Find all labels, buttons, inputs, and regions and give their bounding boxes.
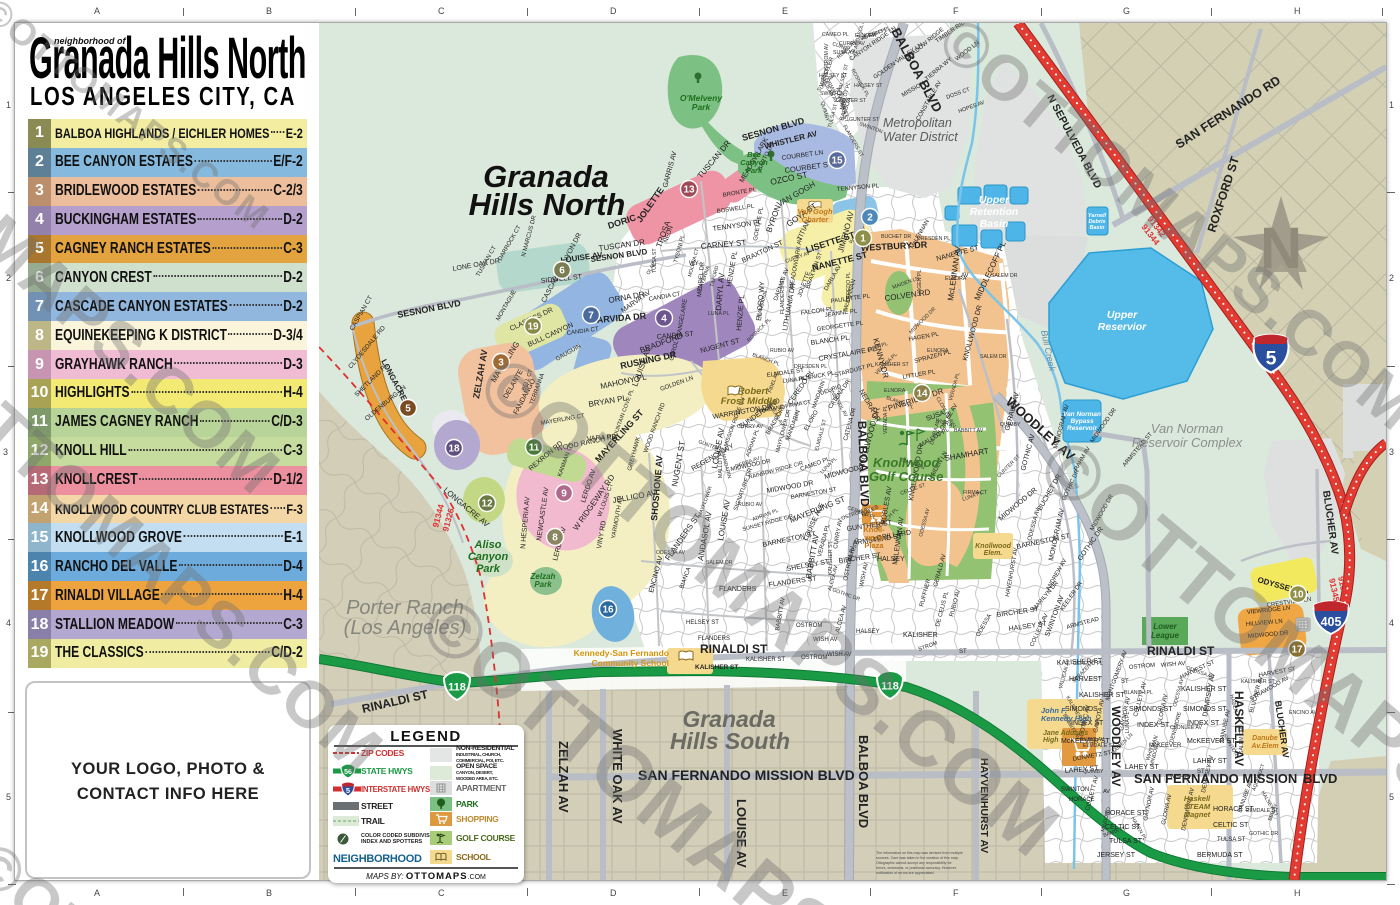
- svg-text:Danube: Danube: [1252, 735, 1278, 742]
- svg-text:Metropolitan: Metropolitan: [883, 116, 952, 130]
- svg-text:Frost Middle: Frost Middle: [721, 396, 778, 407]
- svg-text:FLANDERS: FLANDERS: [719, 586, 757, 593]
- svg-text:LUNA PL: LUNA PL: [708, 311, 729, 317]
- svg-text:SWINTON: SWINTON: [1061, 787, 1089, 793]
- svg-text:HELSEY ST: HELSEY ST: [686, 620, 719, 626]
- svg-text:Kennedy-San Fernando: Kennedy-San Fernando: [574, 648, 669, 658]
- svg-text:HAYVENHURST AV: HAYVENHURST AV: [978, 758, 990, 853]
- svg-text:18: 18: [448, 444, 460, 455]
- svg-text:errors, omissions, or position: errors, omissions, or positional accurac…: [876, 866, 957, 870]
- svg-text:ST: ST: [959, 649, 967, 655]
- svg-text:Bypass: Bypass: [1070, 418, 1094, 425]
- svg-text:QUIMBY: QUIMBY: [1000, 422, 1021, 428]
- svg-text:Park: Park: [534, 580, 552, 589]
- svg-text:Kennedy High: Kennedy High: [1041, 714, 1092, 723]
- svg-text:Van Norman: Van Norman: [1063, 411, 1101, 418]
- svg-text:118: 118: [881, 681, 899, 693]
- svg-text:Lower: Lower: [1153, 622, 1177, 631]
- svg-text:7: 7: [588, 311, 594, 322]
- svg-text:6: 6: [559, 266, 565, 277]
- svg-text:N: N: [1260, 216, 1302, 281]
- svg-text:405: 405: [1321, 615, 1342, 629]
- svg-text:notification of errors are app: notification of errors are appreciated.: [876, 871, 935, 875]
- svg-text:KALISHER ST: KALISHER ST: [1181, 686, 1227, 693]
- svg-text:VERADA PL: VERADA PL: [883, 405, 889, 434]
- svg-text:CURRY AV: CURRY AV: [737, 424, 763, 430]
- svg-text:5: 5: [1266, 347, 1277, 369]
- svg-text:(Los Angeles): (Los Angeles): [344, 617, 467, 639]
- svg-text:Hills North: Hills North: [469, 187, 626, 222]
- svg-text:16: 16: [602, 605, 614, 616]
- svg-text:HASKELL AV: HASKELL AV: [1232, 691, 1246, 766]
- svg-text:17: 17: [1291, 645, 1303, 656]
- svg-text:Canyon: Canyon: [468, 551, 509, 563]
- svg-text:ST: ST: [1121, 679, 1129, 685]
- svg-text:ELNORA: ELNORA: [884, 388, 906, 394]
- svg-text:AV: AV: [1103, 789, 1110, 795]
- svg-text:ELNORA: ELNORA: [927, 348, 949, 354]
- svg-text:ELNORA: ELNORA: [945, 276, 967, 282]
- svg-text:FIRMA CT: FIRMA CT: [963, 490, 988, 496]
- svg-text:Ottographix cannot accept any: Ottographix cannot accept any responsibi…: [876, 861, 953, 865]
- svg-text:DRESDEN PL: DRESDEN PL: [794, 364, 827, 370]
- svg-text:ZELZAH AV: ZELZAH AV: [556, 741, 571, 813]
- svg-text:1: 1: [860, 234, 866, 245]
- svg-text:14: 14: [916, 389, 928, 400]
- svg-text:5: 5: [405, 404, 411, 415]
- svg-text:HALSEY: HALSEY: [856, 629, 880, 635]
- svg-text:9: 9: [561, 489, 567, 500]
- svg-text:56: 56: [344, 769, 352, 776]
- svg-text:WISH AV: WISH AV: [827, 652, 852, 658]
- svg-text:CEREDO PL: CEREDO PL: [1073, 661, 1103, 667]
- svg-text:LOUISE AV: LOUISE AV: [734, 799, 749, 868]
- svg-text:Charter: Charter: [802, 215, 830, 224]
- svg-text:INDEX ST: INDEX ST: [1137, 722, 1170, 729]
- svg-text:SALEM DR: SALEM DR: [991, 273, 1018, 279]
- svg-text:Van Norman: Van Norman: [1151, 421, 1224, 436]
- svg-text:3: 3: [498, 358, 504, 369]
- svg-text:Av.Elem: Av.Elem: [1250, 743, 1278, 750]
- svg-text:Knollwood: Knollwood: [873, 455, 940, 470]
- svg-text:SALEM DR: SALEM DR: [980, 354, 1007, 360]
- svg-text:11: 11: [529, 443, 540, 454]
- svg-text:15: 15: [831, 156, 843, 167]
- svg-text:8: 8: [552, 533, 558, 544]
- svg-text:2: 2: [867, 213, 873, 224]
- svg-text:OSTROM: OSTROM: [801, 655, 827, 661]
- svg-text:Basin: Basin: [1090, 225, 1106, 231]
- svg-text:RINALDI ST: RINALDI ST: [1147, 644, 1215, 658]
- svg-text:HALSEY ST: HALSEY ST: [854, 83, 883, 89]
- svg-text:12: 12: [481, 499, 493, 510]
- svg-text:SALEM DR: SALEM DR: [706, 560, 733, 566]
- svg-text:BABBITT AV: BABBITT AV: [954, 428, 984, 434]
- svg-text:CLONLEE AV: CLONLEE AV: [1170, 725, 1202, 731]
- svg-text:Hills South: Hills South: [670, 728, 790, 754]
- svg-text:118: 118: [448, 682, 466, 694]
- svg-text:KALISHER ST: KALISHER ST: [695, 664, 738, 671]
- svg-text:BALBOA BLVD: BALBOA BLVD: [856, 735, 871, 828]
- svg-text:RUBIO AV: RUBIO AV: [770, 348, 795, 354]
- svg-text:SAN FERNANDO MISSION: SAN FERNANDO MISSION: [1134, 771, 1297, 786]
- svg-text:HAGEN PL: HAGEN PL: [917, 270, 923, 296]
- svg-text:DRESDEN PL: DRESDEN PL: [917, 236, 950, 242]
- svg-text:Knollwood: Knollwood: [975, 543, 1011, 550]
- svg-text:CELTIC ST: CELTIC ST: [1213, 822, 1249, 829]
- svg-text:Golf Course: Golf Course: [869, 469, 943, 484]
- svg-text:Reservior: Reservior: [1098, 321, 1147, 333]
- svg-text:TULSA ST: TULSA ST: [1109, 838, 1143, 845]
- svg-text:HALSEY: HALSEY: [877, 556, 905, 563]
- svg-text:ODESSA AV: ODESSA AV: [656, 550, 686, 556]
- svg-text:ENCINO AV: ENCINO AV: [1289, 710, 1317, 716]
- svg-text:QUIMBY: QUIMBY: [1083, 769, 1104, 775]
- svg-text:GOTHIC DR: GOTHIC DR: [1249, 831, 1278, 837]
- svg-text:FLANDERS ST: FLANDERS ST: [780, 277, 786, 314]
- svg-text:10: 10: [1292, 590, 1304, 601]
- svg-text:JERSEY ST: JERSEY ST: [1097, 852, 1136, 859]
- svg-text:Park: Park: [476, 563, 501, 575]
- svg-text:WISH AV: WISH AV: [813, 637, 838, 643]
- svg-text:BLANCH PL: BLANCH PL: [1124, 690, 1153, 696]
- svg-text:BUCHET DR: BUCHET DR: [881, 234, 911, 240]
- svg-text:13: 13: [683, 185, 695, 196]
- svg-text:RINALDI ST: RINALDI ST: [700, 642, 768, 656]
- svg-text:Plaza: Plaza: [864, 541, 884, 550]
- svg-text:Aliso: Aliso: [474, 539, 502, 551]
- svg-text:Park: Park: [746, 166, 763, 175]
- svg-text:WOODLEY AV: WOODLEY AV: [1109, 706, 1123, 786]
- svg-text:OSTROM AV: OSTROM AV: [824, 43, 830, 74]
- svg-text:Upper: Upper: [979, 194, 1010, 206]
- svg-text:Reservoir: Reservoir: [1067, 425, 1097, 432]
- svg-text:TULSA ST: TULSA ST: [652, 248, 658, 273]
- svg-text:KALISHER ST: KALISHER ST: [746, 657, 785, 663]
- svg-text:SAN FERNANDO MISSION BLVD: SAN FERNANDO MISSION BLVD: [638, 767, 855, 783]
- svg-text:BLVD: BLVD: [1303, 771, 1337, 786]
- svg-text:KALISHER: KALISHER: [903, 632, 938, 639]
- svg-text:RUBIO AV: RUBIO AV: [738, 502, 763, 508]
- svg-text:League: League: [1151, 631, 1180, 640]
- svg-text:TULSA ST: TULSA ST: [1217, 837, 1246, 843]
- svg-text:Basin: Basin: [980, 218, 1009, 230]
- svg-text:19: 19: [527, 322, 539, 333]
- svg-text:Water District: Water District: [883, 130, 958, 144]
- svg-text:OSTROM: OSTROM: [796, 623, 822, 629]
- svg-text:WHITE OAK AV: WHITE OAK AV: [610, 729, 625, 824]
- svg-text:BERMUDA ST: BERMUDA ST: [1197, 852, 1243, 859]
- svg-text:High: High: [1043, 737, 1059, 744]
- svg-text:KALISHER ST: KALISHER ST: [1241, 679, 1276, 685]
- svg-text:KALISHER ST: KALISHER ST: [828, 540, 834, 575]
- svg-text:Community School: Community School: [592, 658, 669, 668]
- svg-text:CAMEO PL: CAMEO PL: [822, 32, 849, 38]
- svg-text:Porter Ranch: Porter Ranch: [346, 597, 464, 619]
- svg-text:Jane Addams: Jane Addams: [1043, 730, 1088, 737]
- svg-text:KALISHER ST: KALISHER ST: [1079, 692, 1125, 699]
- svg-text:Park: Park: [692, 102, 712, 112]
- svg-text:Reservoir Complex: Reservoir Complex: [1132, 435, 1243, 450]
- svg-text:Elem.: Elem.: [984, 550, 1003, 557]
- svg-text:4: 4: [661, 314, 667, 325]
- svg-text:sources. Care was taken in the: sources. Care was taken in the creation …: [876, 856, 959, 860]
- svg-text:Upper: Upper: [1107, 309, 1138, 321]
- svg-text:LUNA PL: LUNA PL: [1125, 712, 1131, 733]
- svg-text:5: 5: [346, 786, 350, 795]
- svg-text:Magnet: Magnet: [1184, 810, 1211, 819]
- svg-text:CEREDO PL: CEREDO PL: [846, 272, 852, 302]
- svg-text:The information on this map wa: The information on this map was devised …: [876, 851, 963, 855]
- svg-text:Retention: Retention: [970, 206, 1018, 218]
